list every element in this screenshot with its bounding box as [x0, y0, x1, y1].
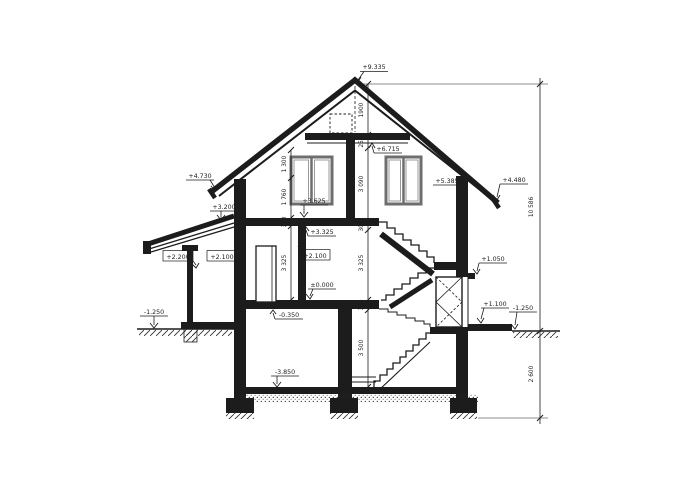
level-basement-floor: -3.850 — [271, 369, 299, 387]
porch-slab — [181, 322, 234, 329]
chimney — [346, 140, 355, 218]
porch-footing — [184, 329, 197, 342]
stair-lower-landing — [430, 327, 458, 334]
porch-beam — [182, 245, 198, 251]
dim-slab-left: 300 — [282, 216, 288, 227]
svg-text:+1.100: +1.100 — [483, 301, 506, 308]
dimension-right-overall: 10 586 2 600 — [357, 78, 548, 424]
dim-window-height: 1 760 — [282, 188, 288, 205]
svg-text:+2.200: +2.200 — [166, 254, 189, 261]
svg-text:+2.100: +2.100 — [303, 253, 326, 260]
level-terrain-left: -1.250 — [140, 309, 168, 328]
stair-mid-landing — [434, 262, 456, 270]
second-floor-slab — [234, 218, 379, 226]
dim-overall-height: 10 586 — [529, 197, 535, 218]
basement-center-wall — [338, 309, 352, 398]
section-drawing-canvas: 10 586 2 600 1900 250 3 090 300 3 325 35… — [0, 0, 679, 480]
level-basement-ceiling: -0.350 — [270, 310, 303, 319]
level-eaves-right: +4.480 — [493, 177, 528, 200]
dim-below-grade: 2 600 — [529, 365, 535, 382]
dimension-center-chain: 1900 250 3 090 300 3 325 350 3 500 — [359, 81, 371, 390]
svg-text:+4.480: +4.480 — [502, 177, 525, 184]
svg-text:+4.730: +4.730 — [188, 173, 211, 180]
level-porch-beam: +2.200 — [163, 251, 199, 269]
footing-left — [226, 398, 254, 413]
svg-text:±0.000: ±0.000 — [310, 282, 333, 289]
svg-text:-1.250: -1.250 — [144, 309, 164, 316]
svg-text:+9.335: +9.335 — [362, 64, 385, 71]
house-section-drawing: 10 586 2 600 1900 250 3 090 300 3 325 35… — [0, 0, 679, 480]
second-floor-window-right — [386, 157, 421, 204]
level-ground-floor: ±0.000 — [306, 282, 336, 299]
flight-to-lower-landing — [379, 309, 430, 327]
svg-text:+3.625: +3.625 — [302, 198, 325, 205]
left-exterior-wall — [234, 179, 246, 398]
dim-second-storey: 3 090 — [359, 175, 365, 192]
attic-chimney-dashed — [330, 114, 352, 133]
ground-floor-door — [256, 246, 276, 302]
svg-text:-1.250: -1.250 — [513, 305, 533, 312]
stairwell-window — [436, 277, 462, 327]
dim-ground-storey: 3 325 — [359, 254, 365, 271]
dim-floor-slab: 300 — [359, 220, 365, 231]
flight-basement-stringer — [378, 342, 430, 391]
dim-ceiling-slab: 250 — [359, 136, 365, 147]
right-exterior-wall-upper — [456, 176, 468, 277]
dim-roof-void: 1900 — [359, 102, 365, 117]
level-floor2-slab-bottom: +3.325 — [303, 227, 336, 236]
second-floor-window-left — [291, 157, 332, 204]
exterior-pad-right — [468, 324, 512, 331]
foundations — [226, 387, 478, 419]
porch — [143, 216, 234, 342]
level-terrain-right: -1.250 — [509, 305, 537, 329]
porch-post — [187, 251, 193, 322]
dim-ground-slab: 350 — [359, 299, 365, 310]
svg-text:-3.850: -3.850 — [275, 369, 295, 376]
svg-text:+6.715: +6.715 — [376, 146, 399, 153]
svg-text:+1.050: +1.050 — [481, 256, 504, 263]
porch-fascia — [143, 241, 151, 254]
flight-basement — [374, 333, 432, 387]
svg-text:+5.385: +5.385 — [435, 178, 458, 185]
level-eaves-left: +4.730 — [186, 173, 218, 191]
right-exterior-wall-lower — [456, 327, 468, 398]
svg-text:-0.350: -0.350 — [279, 312, 299, 319]
level-stair-landing: +1.050 — [473, 256, 507, 274]
right-wall-ledge — [468, 273, 475, 279]
level-attic-ceiling: +6.715 — [369, 143, 402, 153]
dim-basement-storey: 3 500 — [359, 339, 365, 356]
footing-right — [450, 398, 477, 413]
ground-floor-interior-wall — [298, 226, 306, 300]
svg-text:+3.200: +3.200 — [212, 204, 235, 211]
basement-floor-slab — [246, 387, 456, 394]
svg-text:+2.100: +2.100 — [210, 254, 233, 261]
dim-window-head: 1 300 — [282, 155, 288, 172]
dim-storey-left: 3 325 — [282, 254, 288, 271]
level-floor2: +3.625 — [300, 198, 328, 217]
svg-text:+3.325: +3.325 — [310, 229, 333, 236]
level-right-pad: +1.100 — [477, 301, 509, 323]
footing-center — [330, 398, 358, 413]
level-ridge: +9.335 — [354, 64, 388, 82]
flight-mid-stringer — [390, 280, 432, 307]
